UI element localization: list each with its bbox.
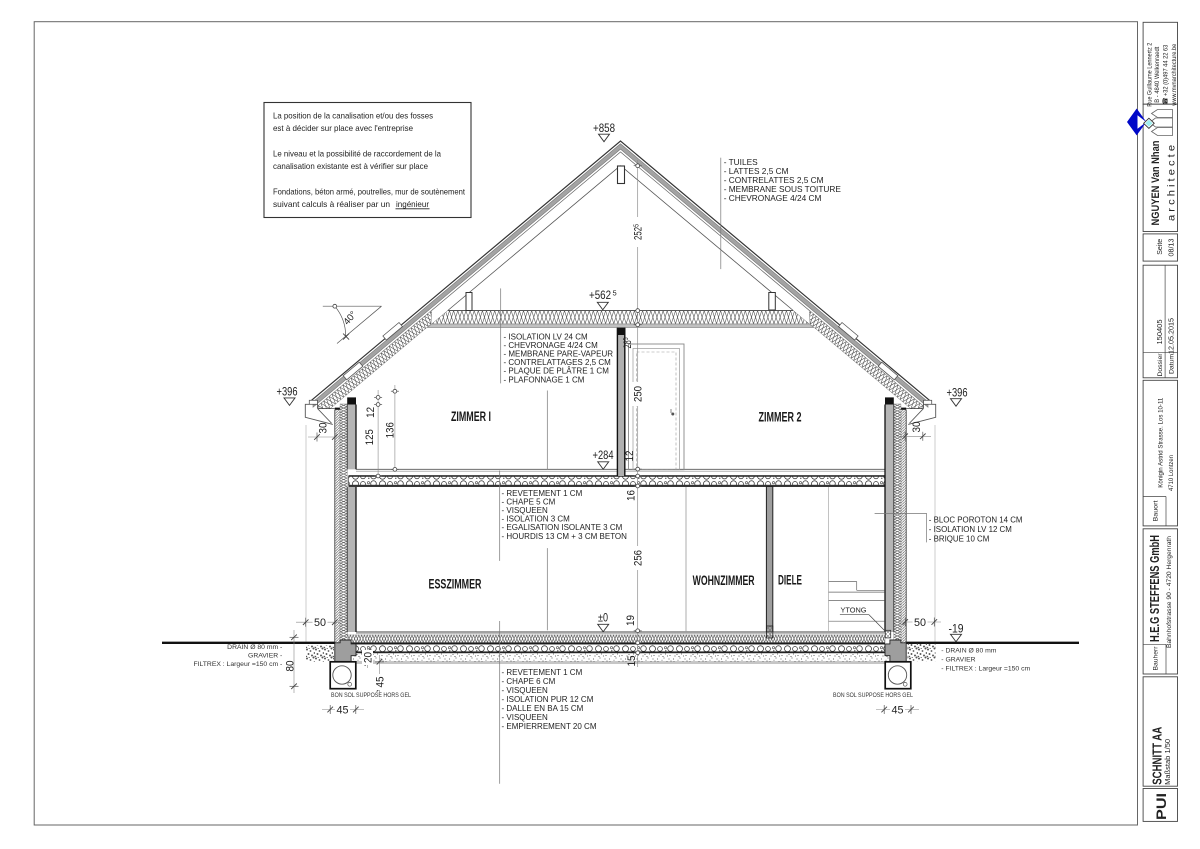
svg-text:+858: +858 (593, 123, 615, 135)
svg-text:DIELE: DIELE (778, 573, 802, 588)
svg-text:PUI: PUI (1153, 793, 1169, 820)
svg-text:08/13: 08/13 (1168, 238, 1175, 256)
svg-text:256: 256 (633, 550, 645, 566)
svg-text:80: 80 (285, 661, 297, 672)
svg-text:- HOURDIS 13 CM + 3 CM BETON: - HOURDIS 13 CM + 3 CM BETON (502, 532, 628, 541)
svg-text:30: 30 (911, 422, 923, 433)
svg-text:ingénieur: ingénieur (396, 200, 429, 209)
svg-text:+396: +396 (947, 388, 968, 400)
svg-text:125: 125 (364, 429, 376, 445)
svg-text:- FILTREX : Largeur =150 cm: - FILTREX : Largeur =150 cm (941, 666, 1030, 673)
svg-text:GRAVIER -: GRAVIER - (248, 653, 282, 660)
svg-text:NGUYEN Van Nhan: NGUYEN Van Nhan (1150, 140, 1162, 225)
svg-text:- VISQUEEN: - VISQUEEN (502, 686, 548, 695)
svg-text:Maßstab 1/50: Maßstab 1/50 (1165, 739, 1172, 785)
svg-text:SCHNITT AA: SCHNITT AA (1149, 726, 1164, 784)
svg-text:150405: 150405 (1157, 319, 1164, 344)
svg-text:Rue Guillaume Lennertz 2: Rue Guillaume Lennertz 2 (1146, 43, 1153, 107)
svg-text:45: 45 (337, 705, 349, 717)
svg-text:- CHAPE 6 CM: - CHAPE 6 CM (502, 677, 556, 686)
svg-text:Datum: Datum (1168, 354, 1175, 374)
svg-text:Le niveau et la possibilité de: Le niveau et la possibilité de raccordem… (273, 150, 441, 159)
svg-text:H.E.G STEFFENS GmbH: H.E.G STEFFENS GmbH (1148, 535, 1162, 642)
svg-text:12: 12 (624, 451, 636, 462)
svg-text:- ISOLATION PUR 12 CM: - ISOLATION PUR 12 CM (502, 695, 594, 704)
svg-text:±0: ±0 (598, 613, 608, 625)
svg-text:-19: -19 (949, 624, 964, 636)
svg-text:12: 12 (365, 407, 377, 418)
svg-text:Bauherr: Bauherr (1152, 646, 1159, 671)
svg-text:BON SOL SUPPOSE HORS GEL: BON SOL SUPPOSE HORS GEL (833, 692, 913, 699)
svg-text:+396: +396 (277, 387, 298, 399)
svg-text:+562: +562 (589, 290, 611, 302)
svg-text:- DALLE EN BA 15 CM: - DALLE EN BA 15 CM (502, 704, 584, 713)
svg-text:Seite: Seite (1157, 239, 1164, 255)
svg-text:- BRIQUE 10 CM: - BRIQUE 10 CM (929, 535, 990, 544)
svg-text:136: 136 (385, 422, 397, 438)
svg-text:☎ +32 (0)497 44 22 63: ☎ +32 (0)497 44 22 63 (1162, 45, 1170, 105)
svg-text:- GRAVIER: - GRAVIER (941, 657, 975, 664)
svg-text:WOHNZIMMER: WOHNZIMMER (693, 573, 755, 588)
svg-text:canalisation existante est à v: canalisation existante est à vérifier su… (273, 162, 428, 171)
svg-text:- CHEVRONAGE 4/24 CM: - CHEVRONAGE 4/24 CM (724, 193, 822, 203)
svg-text:FILTREX : Largeur =150 cm -: FILTREX : Largeur =150 cm - (193, 661, 282, 668)
svg-text:Königin Astrid Strasse. Los 10: Königin Astrid Strasse. Los 10-11 (1157, 398, 1164, 488)
svg-text:50: 50 (314, 617, 326, 629)
svg-text:45: 45 (892, 705, 904, 717)
svg-text:15: 15 (626, 656, 638, 667)
svg-text:- REVETEMENT 1 CM: - REVETEMENT 1 CM (502, 668, 583, 677)
svg-text:30: 30 (318, 423, 330, 434)
svg-text:est à décider sur place avec l: est à décider sur place avec l'entrepris… (273, 124, 413, 133)
svg-text:20: 20 (363, 652, 375, 663)
svg-text:4710 Lontzen: 4710 Lontzen (1168, 455, 1175, 491)
svg-text:- PLAFONNAGE 1 CM: - PLAFONNAGE 1 CM (504, 375, 585, 384)
svg-text:YTONG: YTONG (841, 606, 867, 615)
svg-text:Dossier: Dossier (1157, 353, 1164, 377)
svg-text:- EMPIERREMENT 20 CM: - EMPIERREMENT 20 CM (502, 722, 597, 731)
svg-text:ZIMMER I: ZIMMER I (451, 409, 491, 424)
svg-text:- VISQUEEN: - VISQUEEN (502, 713, 548, 722)
svg-text:- DRAIN Ø 80 mm: - DRAIN Ø 80 mm (941, 648, 996, 655)
svg-text:5: 5 (613, 289, 617, 298)
svg-text:La position de la canalisation: La position de la canalisation et/ou des… (273, 112, 433, 121)
svg-text:16: 16 (626, 490, 638, 501)
svg-text:Bahnhofstrasse 90 - 4720 Herge: Bahnhofstrasse 90 - 4720 Hergenrath (1166, 536, 1173, 648)
svg-text:Fondations, béton armé, poutre: Fondations, béton armé, poutrelles, mur … (273, 188, 466, 197)
svg-text:suivant calculs à réaliser par: suivant calculs à réaliser par un (273, 200, 390, 209)
svg-text:B - 4840 Welkenraedt: B - 4840 Welkenraedt (1154, 47, 1161, 103)
svg-text:- ISOLATION LV 12 CM: - ISOLATION LV 12 CM (929, 525, 1012, 534)
svg-text:50: 50 (914, 617, 926, 629)
svg-text:ESSZIMMER: ESSZIMMER (429, 577, 482, 592)
svg-text:12.05.2015: 12.05.2015 (1168, 318, 1175, 354)
svg-text:+284: +284 (593, 450, 614, 462)
svg-text:www.mvnarchitecture.be: www.mvnarchitecture.be (1171, 44, 1178, 107)
svg-text:BON SOL SUPPOSE HORS GEL: BON SOL SUPPOSE HORS GEL (331, 692, 411, 699)
svg-text:- BLOC POROTON 14 CM: - BLOC POROTON 14 CM (929, 516, 1023, 525)
svg-text:45: 45 (375, 677, 387, 688)
svg-text:ZIMMER 2: ZIMMER 2 (759, 410, 802, 425)
svg-text:DRAIN Ø 80 mm -: DRAIN Ø 80 mm - (227, 644, 282, 651)
svg-text:Bauort: Bauort (1152, 500, 1159, 521)
svg-text:a r c h i t e c t e: a r c h i t e c t e (1166, 145, 1177, 221)
svg-text:250: 250 (633, 386, 645, 402)
svg-text:19: 19 (625, 615, 637, 626)
